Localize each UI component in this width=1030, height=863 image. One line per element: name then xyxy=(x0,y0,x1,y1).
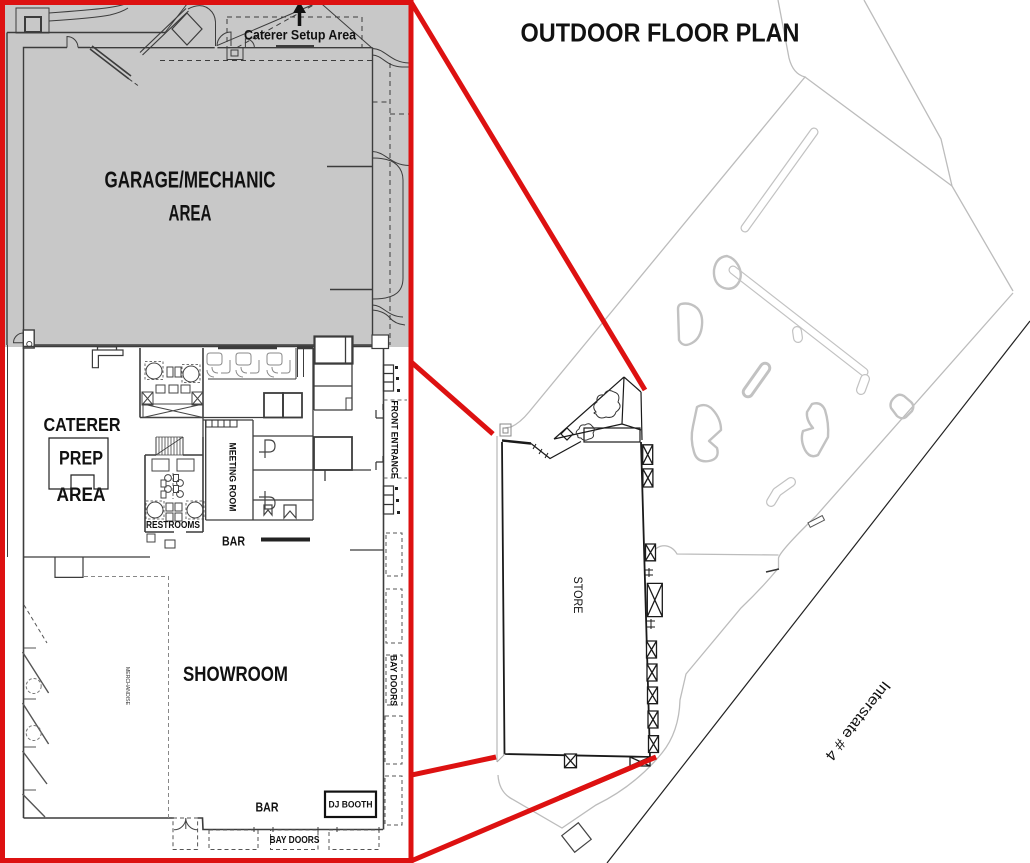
svg-text:PREP: PREP xyxy=(59,449,103,470)
svg-text:AREA: AREA xyxy=(57,485,106,506)
svg-text:BAR: BAR xyxy=(256,800,279,814)
svg-text:Interstate # 4: Interstate # 4 xyxy=(821,678,893,764)
svg-text:SHOWROOM: SHOWROOM xyxy=(183,663,288,686)
svg-text:BAR: BAR xyxy=(222,534,245,548)
svg-text:AREA: AREA xyxy=(169,201,212,226)
svg-text:BAY DOORS: BAY DOORS xyxy=(389,655,399,706)
svg-text:MERCHANDISE: MERCHANDISE xyxy=(124,667,130,705)
svg-text:FRONT ENTRANCE: FRONT ENTRANCE xyxy=(389,401,400,479)
svg-text:GARAGE/MECHANIC: GARAGE/MECHANIC xyxy=(105,166,276,192)
svg-text:MEETING ROOM: MEETING ROOM xyxy=(227,443,238,512)
svg-text:DJ BOOTH: DJ BOOTH xyxy=(329,800,373,810)
svg-text:STORE: STORE xyxy=(571,577,583,614)
svg-text:RESTROOMS: RESTROOMS xyxy=(146,520,200,531)
svg-text:OUTDOOR FLOOR PLAN: OUTDOOR FLOOR PLAN xyxy=(521,17,800,47)
svg-text:BAY DOORS: BAY DOORS xyxy=(270,835,320,846)
svg-text:Caterer Setup Area: Caterer Setup Area xyxy=(244,26,356,42)
svg-text:CATERER: CATERER xyxy=(44,414,121,435)
